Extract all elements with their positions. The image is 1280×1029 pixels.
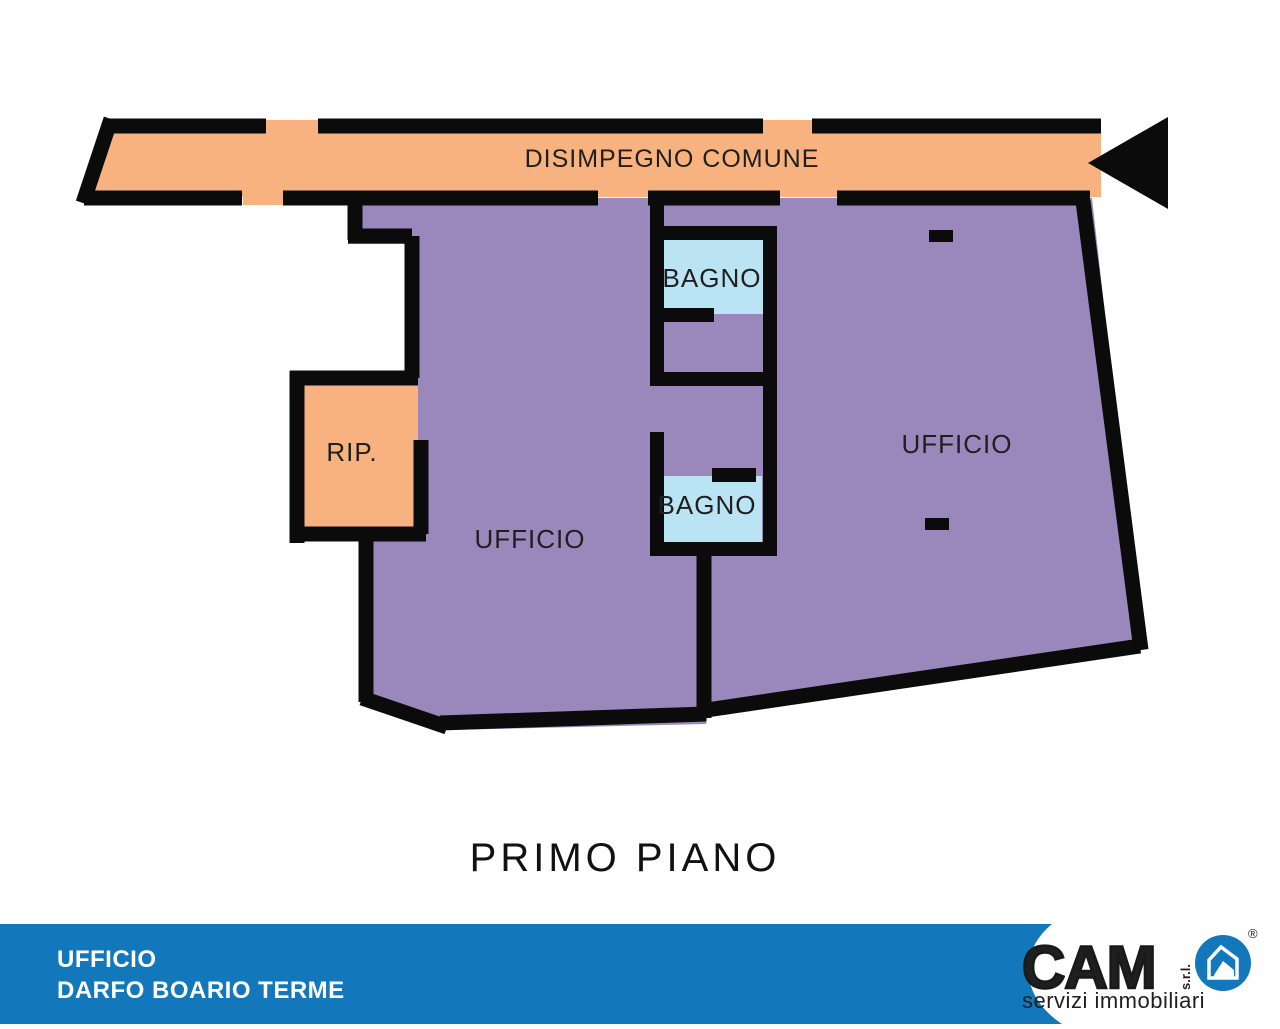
floor-plan-svg: DISIMPEGNO COMUNE BAGNO BAGNO RIP. UFFIC… — [0, 0, 1280, 924]
office-left-label: UFFICIO — [475, 524, 586, 554]
corridor-label: DISIMPEGNO COMUNE — [525, 145, 820, 173]
logo-tagline-text: servizi immobiliari — [1022, 988, 1205, 1013]
agency-logo-svg: CAM s.r.l. servizi immobiliari ® — [990, 924, 1280, 1024]
footer-text: UFFICIO DARFO BOARIO TERME — [57, 944, 345, 1006]
logo-suffix-text: s.r.l. — [1178, 964, 1193, 990]
bathroom-top-label: BAGNO — [663, 263, 762, 293]
office-right-label: UFFICIO — [902, 429, 1013, 459]
agency-logo: CAM s.r.l. servizi immobiliari ® — [990, 924, 1280, 1024]
page-title: PRIMO PIANO — [0, 836, 1250, 881]
storage-label: RIP. — [326, 437, 377, 467]
corridor-door-spill — [243, 196, 283, 205]
logo-registered-mark: ® — [1248, 926, 1258, 941]
footer-location: DARFO BOARIO TERME — [57, 975, 345, 1006]
bathroom-bottom-label: BAGNO — [658, 490, 757, 520]
footer-bar: UFFICIO DARFO BOARIO TERME CAM s.r.l. se… — [0, 924, 1280, 1024]
floor-plan: DISIMPEGNO COMUNE BAGNO BAGNO RIP. UFFIC… — [0, 0, 1280, 924]
footer-property-type: UFFICIO — [57, 944, 345, 975]
